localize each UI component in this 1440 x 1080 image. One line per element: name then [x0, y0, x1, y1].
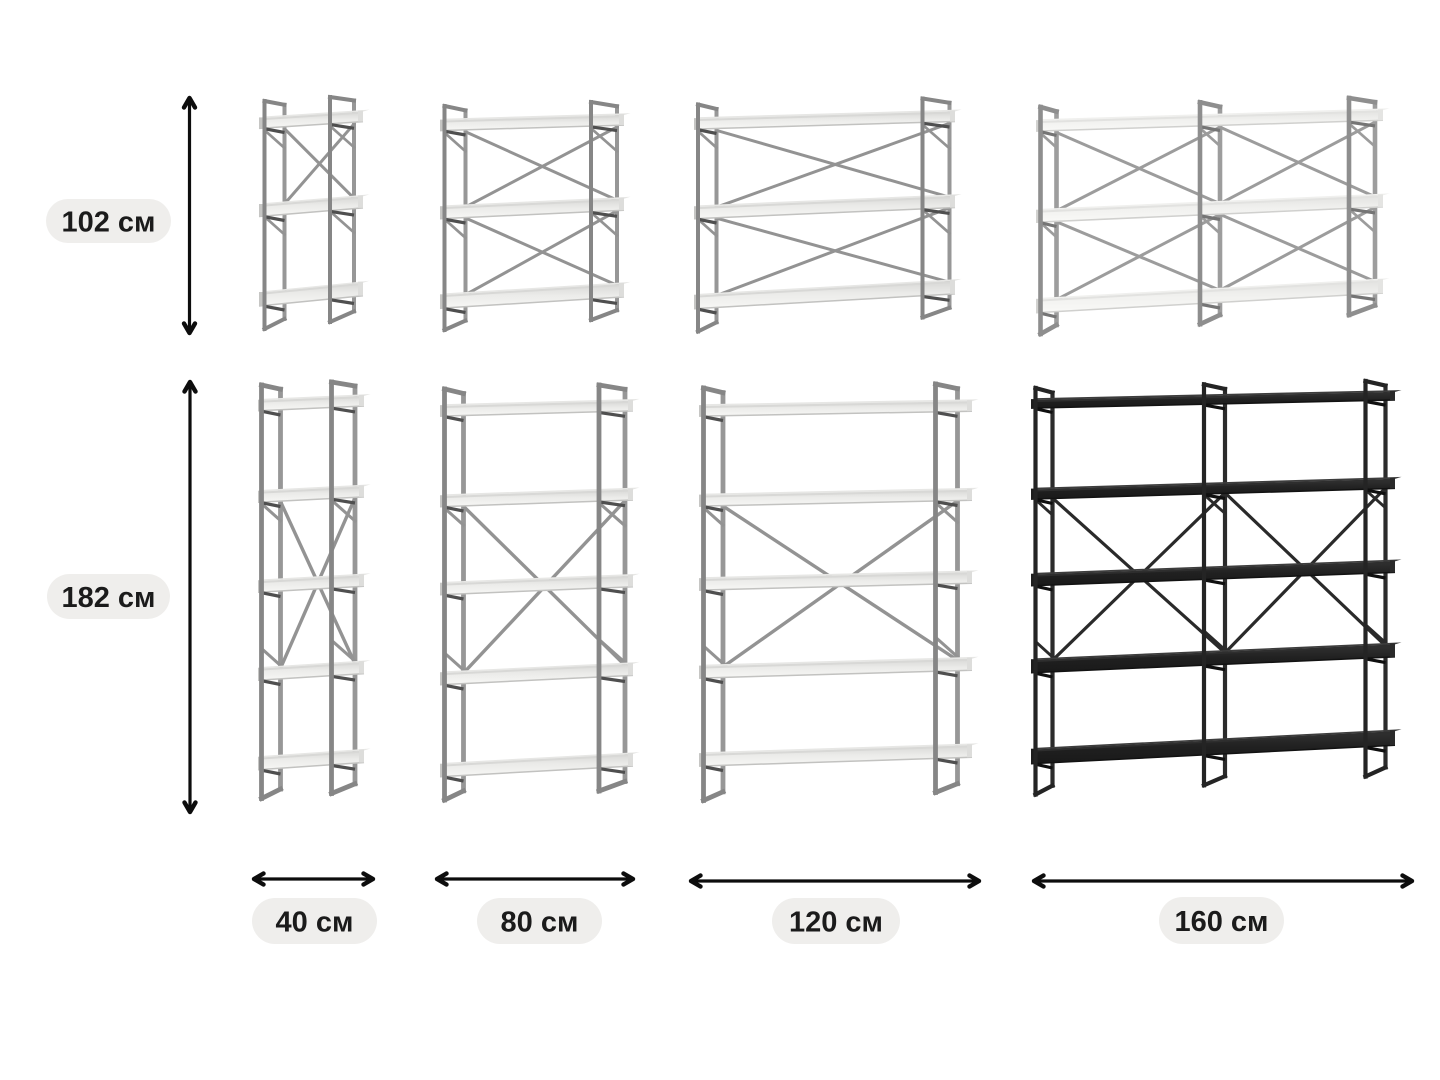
svg-text:182 см: 182 см — [61, 582, 155, 614]
svg-text:40 см: 40 см — [276, 907, 354, 939]
svg-text:120 см: 120 см — [789, 907, 883, 939]
svg-text:80 см: 80 см — [501, 907, 579, 939]
svg-text:160 см: 160 см — [1174, 906, 1268, 938]
svg-text:102 см: 102 см — [61, 207, 155, 239]
